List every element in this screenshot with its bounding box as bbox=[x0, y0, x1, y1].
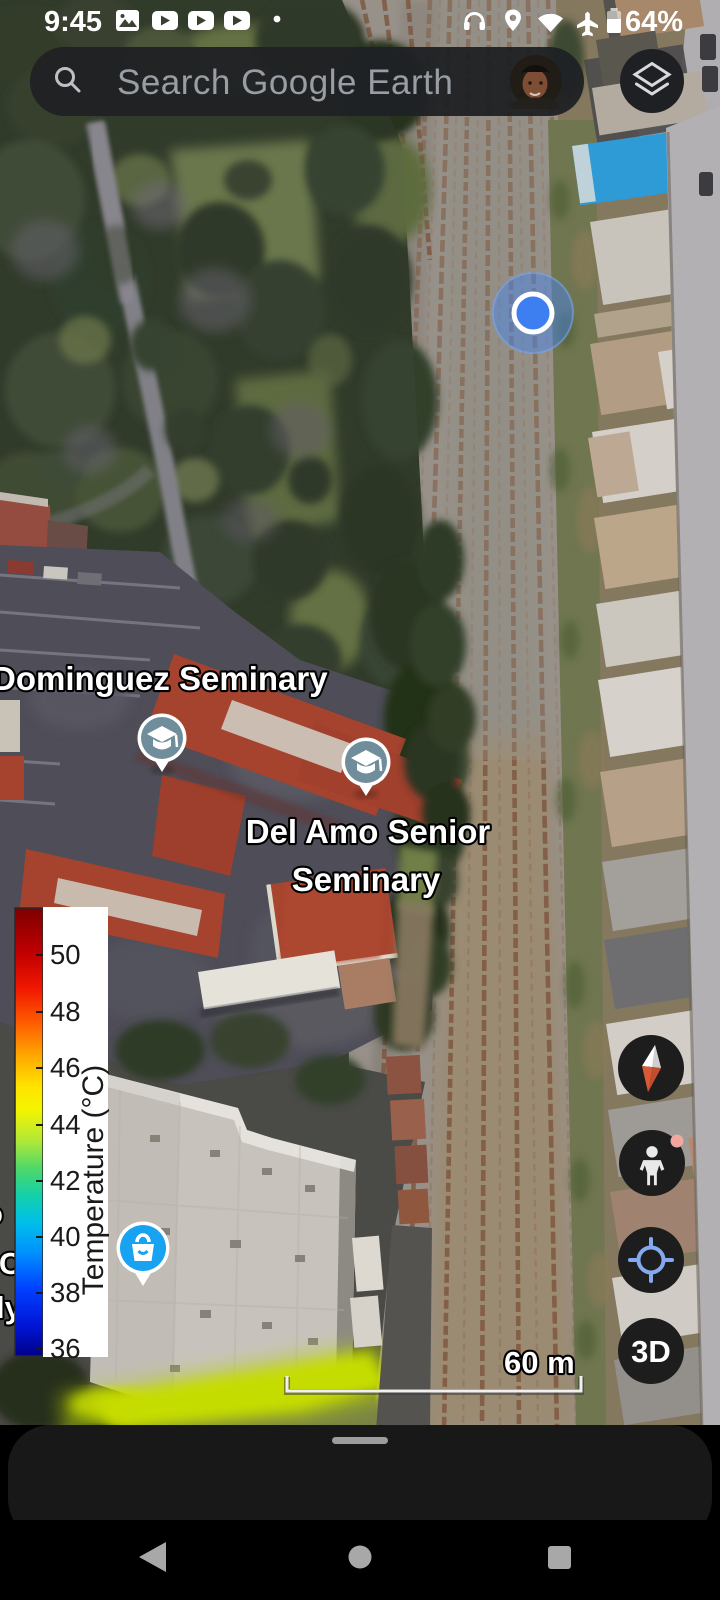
svg-text:64%: 64% bbox=[625, 6, 683, 38]
svg-text:40: 40 bbox=[50, 1221, 81, 1252]
svg-text:46: 46 bbox=[50, 1052, 81, 1083]
svg-text:Search Google Earth: Search Google Earth bbox=[117, 63, 453, 102]
svg-text:36: 36 bbox=[50, 1333, 81, 1364]
svg-text:3D: 3D bbox=[631, 1334, 671, 1369]
svg-text:Temperature (°C): Temperature (°C) bbox=[77, 1065, 110, 1295]
svg-text:44: 44 bbox=[50, 1109, 81, 1140]
svg-text:38: 38 bbox=[50, 1277, 81, 1308]
svg-text:9:45: 9:45 bbox=[44, 6, 102, 38]
svg-text:50: 50 bbox=[50, 939, 81, 970]
svg-text:42: 42 bbox=[50, 1165, 81, 1196]
svg-text:48: 48 bbox=[50, 996, 81, 1027]
svg-text:Dominguez Seminary: Dominguez Seminary bbox=[0, 660, 328, 697]
svg-text:o: o bbox=[0, 1196, 3, 1231]
svg-text:Del Amo Senior: Del Amo Senior bbox=[246, 813, 491, 850]
svg-text:60 m: 60 m bbox=[504, 1345, 575, 1380]
svg-text:Seminary: Seminary bbox=[292, 861, 441, 898]
